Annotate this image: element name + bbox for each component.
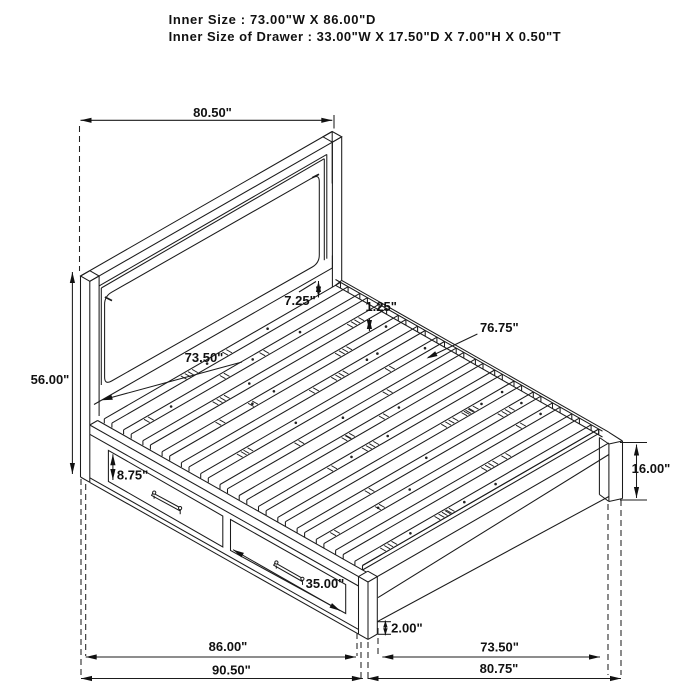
svg-text:86.00": 86.00": [209, 639, 248, 654]
svg-text:Inner Size : 73.00"W X 86.00"D: Inner Size : 73.00"W X 86.00"D: [169, 12, 376, 27]
svg-text:35.00": 35.00": [306, 576, 345, 591]
svg-text:90.50": 90.50": [212, 663, 251, 678]
svg-text:8.75": 8.75": [117, 467, 148, 482]
svg-text:1.25": 1.25": [365, 299, 396, 314]
svg-text:73.50": 73.50": [480, 640, 519, 655]
svg-text:80.75": 80.75": [480, 661, 519, 676]
svg-text:76.75": 76.75": [480, 320, 519, 335]
svg-text:56.00": 56.00": [31, 372, 70, 387]
svg-text:73.50": 73.50": [185, 350, 224, 365]
svg-text:80.50": 80.50": [193, 105, 232, 120]
svg-text:Inner Size of Drawer : 33.00"W: Inner Size of Drawer : 33.00"W X 17.50"D…: [169, 29, 562, 44]
svg-text:2.00": 2.00": [391, 621, 422, 636]
svg-text:7.25": 7.25": [284, 293, 315, 308]
svg-text:16.00": 16.00": [632, 461, 671, 476]
